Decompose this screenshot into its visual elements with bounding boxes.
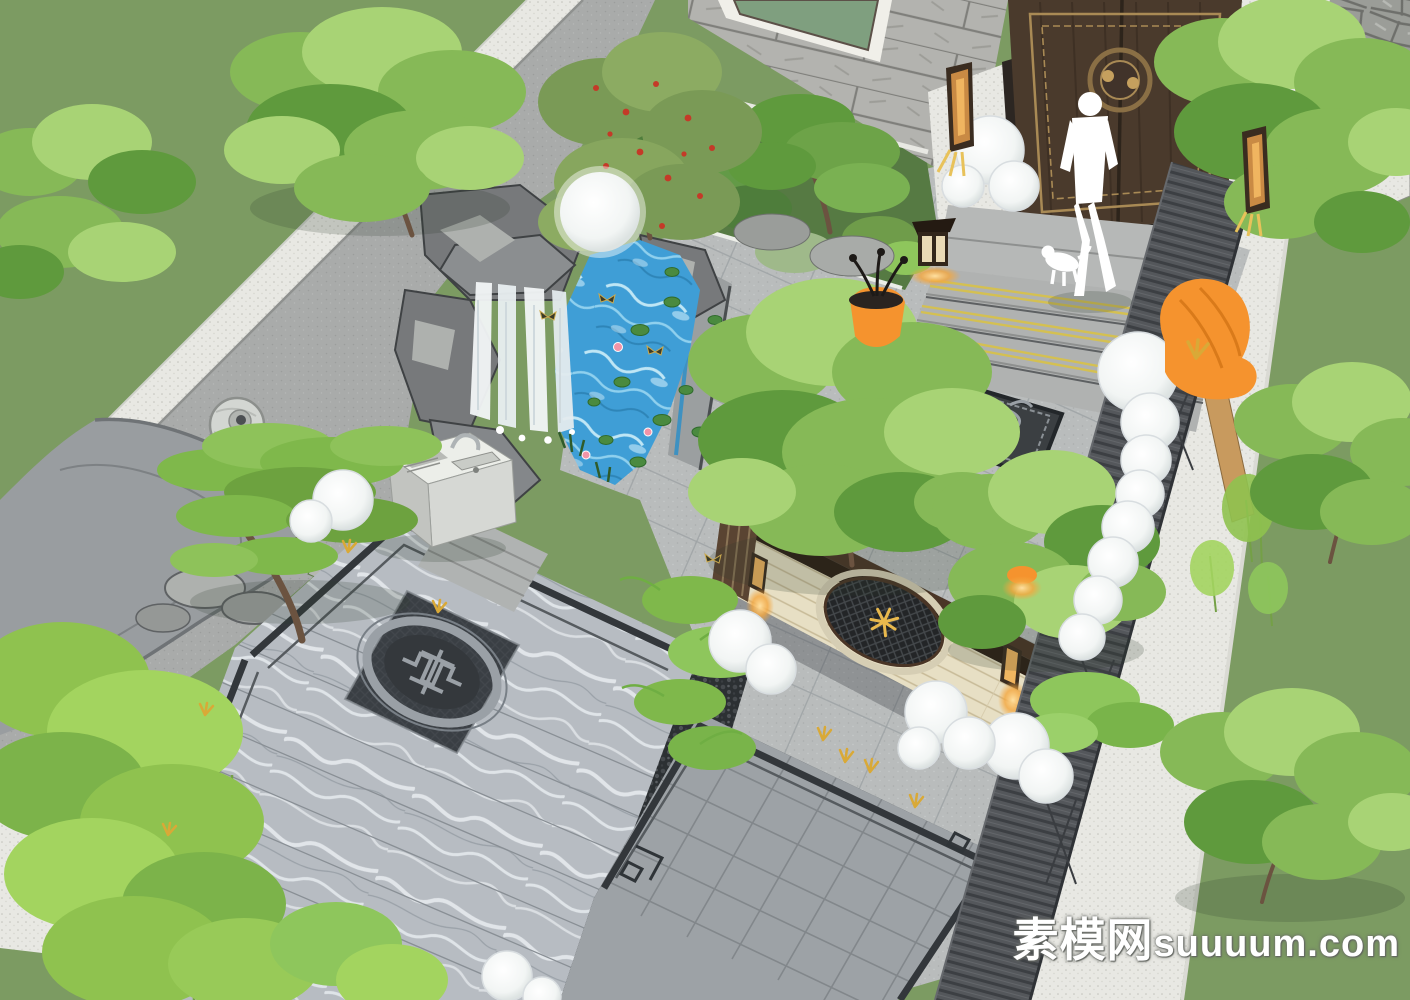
glowing-ball-tree bbox=[554, 166, 646, 258]
courtyard-render bbox=[0, 0, 1410, 1000]
watermark-latin: suuuum.com bbox=[1154, 923, 1400, 965]
render-canvas: 素模网suuuum.com bbox=[0, 0, 1410, 1000]
watermark: 素模网suuuum.com bbox=[1013, 904, 1400, 970]
watermark-cjk: 素模网 bbox=[1013, 914, 1154, 966]
